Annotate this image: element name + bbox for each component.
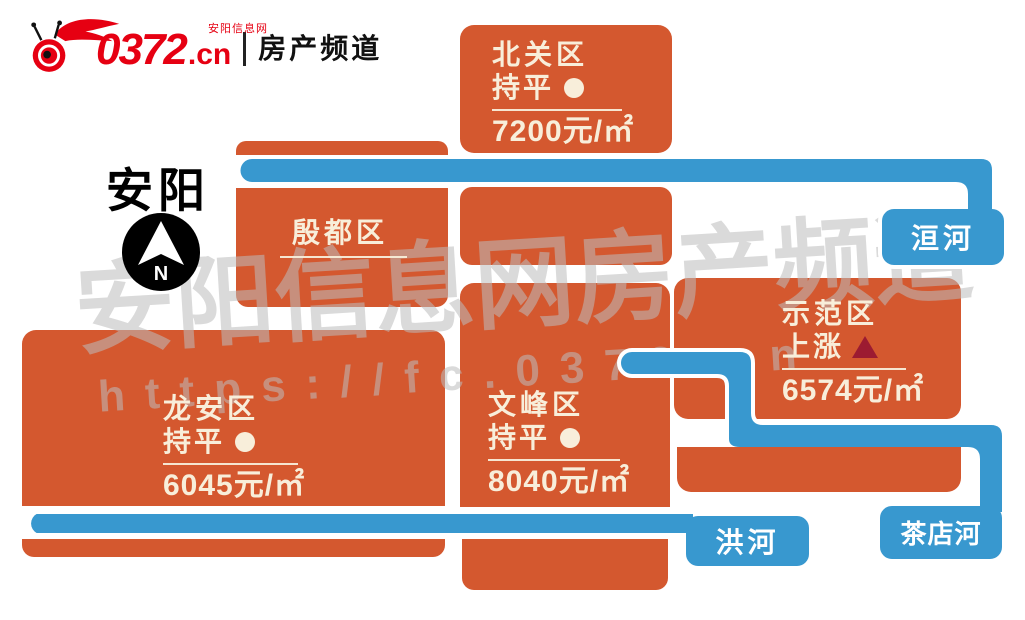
flat-dot-icon — [560, 428, 580, 448]
trend-text: 持平 — [163, 425, 225, 458]
trend-text: 持平 — [488, 421, 550, 454]
compass-letter: N — [122, 263, 200, 286]
hong-river-path — [29, 512, 755, 535]
district-price: 6045元/㎡ — [163, 469, 305, 503]
rise-triangle-icon — [852, 336, 878, 358]
label-divider — [492, 109, 622, 111]
label-divider — [280, 256, 407, 258]
district-trend: 持平 — [163, 425, 305, 458]
compass-north-icon: N — [122, 213, 200, 291]
yindu-district-label: 殷都区 — [280, 216, 407, 262]
label-divider — [782, 368, 906, 370]
district-trend: 持平 — [492, 71, 634, 104]
hong-river-label: 洪河 — [684, 514, 811, 568]
longan-district-label: 龙安区 持平 6045元/㎡ — [163, 392, 305, 503]
district-price: 7200元/㎡ — [492, 115, 634, 149]
logo-domain: .cn — [188, 38, 231, 72]
logo-subtitle: 安阳信息网 — [208, 20, 268, 36]
city-title: 安阳 — [106, 152, 210, 221]
chadian-river-label: 茶店河 — [878, 504, 1004, 561]
label-divider — [163, 463, 298, 465]
anyang-price-map: 安阳信息网房产频道 https://fc.0372.cn 洹河 洪河 茶店河 北… — [0, 0, 1025, 620]
site-logo: 0372 .cn 安阳信息网 房产频道 — [26, 10, 382, 80]
district-trend: 上涨 — [782, 330, 924, 363]
trend-text: 上涨 — [782, 330, 844, 363]
shifan-district-block-lower — [677, 447, 961, 492]
district-price: 8040元/㎡ — [488, 465, 630, 499]
wenfeng-district-label: 文峰区 持平 8040元/㎡ — [488, 388, 630, 499]
longan-district-block-lower — [22, 539, 445, 557]
district-name: 北关区 — [492, 38, 634, 71]
yindu-district-block-upper — [236, 141, 448, 155]
district-name: 文峰区 — [488, 388, 630, 421]
district-price: 6574元/㎡ — [782, 374, 924, 408]
huan-river-label: 洹河 — [880, 207, 1006, 267]
district-name: 龙安区 — [163, 392, 305, 425]
logo-number: 0372 — [96, 28, 186, 72]
shifan-district-label: 示范区 上涨 6574元/㎡ — [782, 297, 924, 408]
label-divider — [488, 459, 620, 461]
logo-channel: 房产频道 — [243, 32, 382, 66]
flat-dot-icon — [564, 78, 584, 98]
logo-wordmark: 0372 .cn 安阳信息网 — [96, 28, 231, 72]
beiguan-district-label: 北关区 持平 7200元/㎡ — [492, 38, 634, 149]
district-name: 殷都区 — [292, 216, 407, 249]
district-trend: 持平 — [488, 421, 630, 454]
trend-text: 持平 — [492, 71, 554, 104]
district-name: 示范区 — [782, 297, 924, 330]
flat-dot-icon — [235, 432, 255, 452]
beiguan-district-block-lower — [460, 187, 672, 265]
wenfeng-district-block-lower — [462, 539, 668, 590]
